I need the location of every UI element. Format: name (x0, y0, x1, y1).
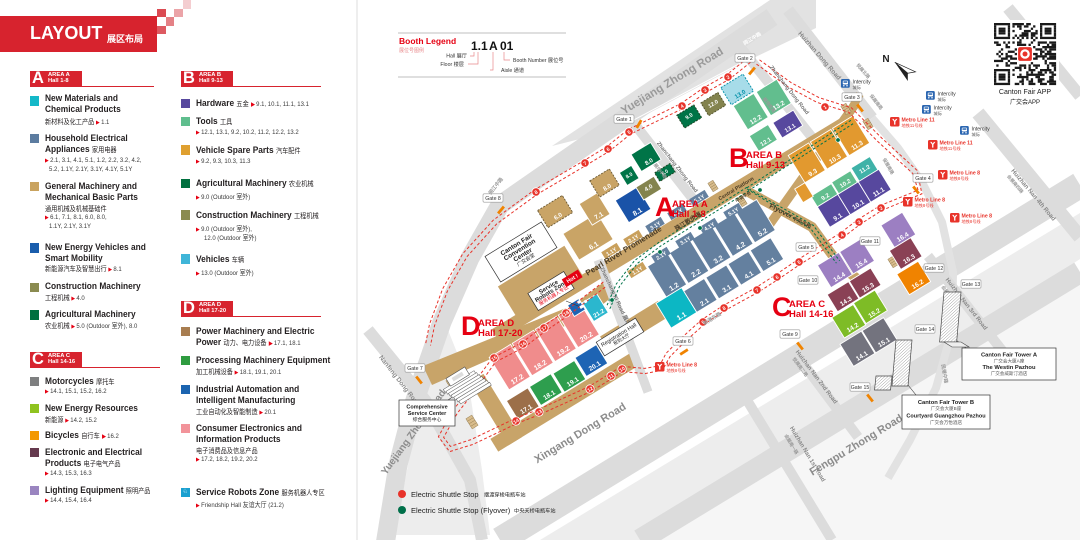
svg-text:中央天桥电瓶车站: 中央天桥电瓶车站 (514, 507, 556, 515)
svg-text:Hall 9-13: Hall 9-13 (746, 160, 785, 171)
svg-text:Gate 3: Gate 3 (844, 95, 860, 101)
svg-text:Aisle 通道: Aisle 通道 (501, 66, 524, 74)
svg-text:城际: 城际 (972, 131, 980, 138)
svg-text:Canton Fair APP: Canton Fair APP (999, 89, 1051, 96)
svg-text:Gate 14: Gate 14 (916, 327, 935, 333)
svg-text:广交会APP: 广交会APP (1010, 98, 1040, 106)
svg-text:城际: 城际 (853, 84, 861, 91)
svg-text:综合服务中心: 综合服务中心 (413, 416, 442, 423)
svg-text:A: A (489, 39, 498, 53)
svg-text:Comprehensive: Comprehensive (406, 404, 447, 410)
svg-text:Gate 7: Gate 7 (407, 366, 423, 372)
svg-text:Gate 5: Gate 5 (798, 245, 814, 251)
svg-text:Hall 14-16: Hall 14-16 (789, 309, 833, 320)
svg-text:Booth Number 展位号: Booth Number 展位号 (513, 56, 563, 64)
svg-text:Electric Shuttle Stop: Electric Shuttle Stop (411, 490, 479, 499)
svg-text:Service Center: Service Center (408, 411, 447, 417)
svg-text:广交会大厦A座: 广交会大厦A座 (994, 357, 1025, 364)
svg-text:Gate 12: Gate 12 (925, 266, 944, 272)
svg-text:广交会威斯汀酒店: 广交会威斯汀酒店 (991, 370, 1028, 377)
svg-text:Gate 9: Gate 9 (782, 332, 798, 338)
svg-text:Canton Fair Tower B: Canton Fair Tower B (918, 400, 974, 406)
svg-text:Gate 10: Gate 10 (799, 278, 818, 284)
svg-text:城际: 城际 (934, 110, 942, 117)
svg-text:广交会大厦B座: 广交会大厦B座 (931, 405, 962, 412)
svg-text:地铁8号线: 地铁8号线 (667, 367, 687, 374)
svg-text:N: N (882, 54, 889, 65)
svg-text:Gate 8: Gate 8 (485, 196, 501, 202)
svg-text:展位号图例: 展位号图例 (399, 47, 424, 54)
svg-text:Floor 楼层: Floor 楼层 (440, 60, 464, 68)
svg-text:Courtyard Guangzhou Pazhou: Courtyard Guangzhou Pazhou (906, 413, 985, 419)
svg-text:广交会万怡酒店: 广交会万怡酒店 (930, 419, 963, 426)
svg-text:Gate 11: Gate 11 (861, 239, 879, 245)
svg-text:Hall 17-20: Hall 17-20 (478, 328, 522, 339)
svg-text:Gate 4: Gate 4 (915, 176, 931, 182)
svg-text:Hall 展厅: Hall 展厅 (446, 53, 467, 60)
svg-text:摆渡穿梭电瓶车站: 摆渡穿梭电瓶车站 (484, 491, 526, 499)
svg-text:Gate 15: Gate 15 (851, 385, 870, 391)
svg-text:地铁8号线: 地铁8号线 (962, 218, 982, 225)
svg-text:Gate 6: Gate 6 (675, 339, 691, 345)
svg-text:Gate 13: Gate 13 (962, 282, 981, 288)
svg-text:地铁8号线: 地铁8号线 (950, 175, 970, 182)
svg-text:01: 01 (500, 39, 514, 53)
svg-text:地铁11号线: 地铁11号线 (902, 122, 924, 129)
svg-text:城际: 城际 (938, 96, 946, 103)
svg-text:1.1: 1.1 (471, 39, 488, 53)
svg-text:Booth Legend: Booth Legend (399, 36, 456, 46)
svg-text:Electric Shuttle Stop (Flyover: Electric Shuttle Stop (Flyover) (411, 506, 511, 515)
svg-text:Gate 2: Gate 2 (737, 56, 753, 62)
svg-text:地铁11号线: 地铁11号线 (940, 145, 962, 152)
svg-text:地铁8号线: 地铁8号线 (915, 202, 935, 209)
svg-text:Gate 1: Gate 1 (616, 117, 632, 123)
